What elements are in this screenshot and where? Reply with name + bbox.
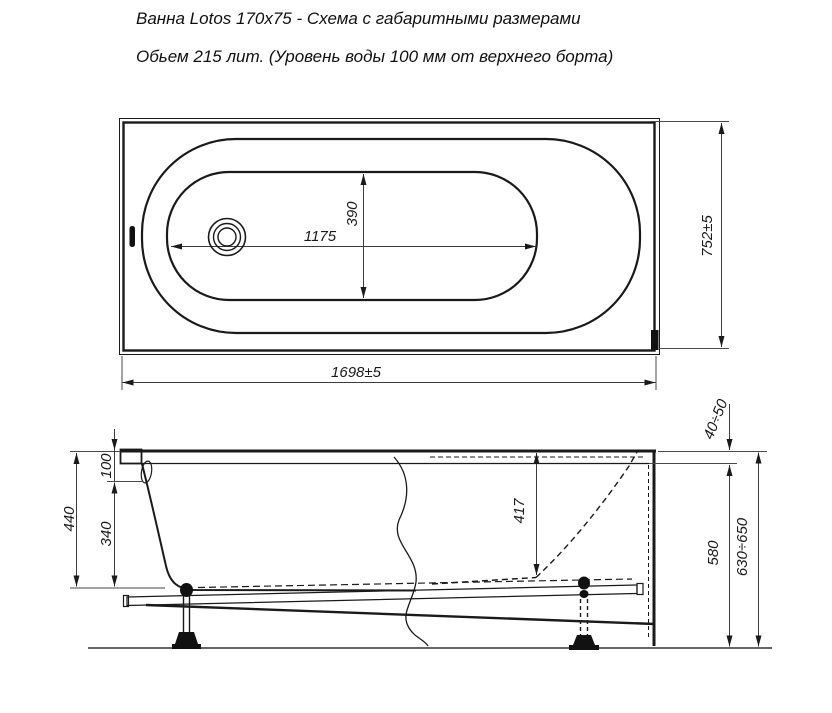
dim-text-rim-band: 40÷50 <box>700 396 732 442</box>
hidden-end-wall-profile <box>536 452 637 578</box>
leg-top-nut <box>578 577 590 590</box>
dim-text-water-depth: 340 <box>98 521 115 547</box>
basin-outline <box>167 172 537 300</box>
dim-text-total-height: 630÷650 <box>734 517 751 576</box>
dim-text-overall-width: 752±5 <box>699 215 716 257</box>
leg-front <box>172 583 201 649</box>
leg-foot <box>175 632 198 644</box>
drain <box>209 219 246 256</box>
technical-drawing: Ванна Lotos 170x75 - Схема с габаритными… <box>0 0 832 713</box>
rim-outline <box>142 139 640 333</box>
drawing-title: Ванна Lotos 170x75 - Схема с габаритными… <box>136 9 581 28</box>
dim-text-inner-depth-total: 440 <box>61 506 78 532</box>
leg-rear-hidden <box>569 577 599 651</box>
leg-foot <box>573 635 595 645</box>
break-line <box>394 457 428 646</box>
side-view: 440 100 340 417 40÷50 580 630÷650 <box>61 396 772 650</box>
dim-text-water-level: 100 <box>98 453 115 479</box>
dim-text-inner-depth-slope: 417 <box>511 498 528 524</box>
drain-inner-circle <box>218 228 236 246</box>
title-block: Ванна Lotos 170x75 - Схема с габаритными… <box>136 9 613 66</box>
dim-text-bottom-length: 1175 <box>304 228 337 245</box>
dim-text-bottom-width: 390 <box>344 201 361 227</box>
drawing-sheet: Ванна Lotos 170x75 - Схема с габаритными… <box>0 0 832 713</box>
plan-view: 1175 390 1698±5 752±5 <box>120 119 730 391</box>
dim-text-overall-length: 1698±5 <box>331 364 382 381</box>
support-rail <box>127 585 637 606</box>
overflow-mark <box>130 226 136 247</box>
frame-corner-mark <box>651 330 659 350</box>
rail-end-cap-right <box>637 584 643 595</box>
inner-wall-profile <box>142 464 416 591</box>
drawing-subtitle: Обьем 215 лит. (Уровень воды 100 мм от в… <box>136 47 613 66</box>
leg-lock-nut <box>580 590 589 598</box>
leg-foot-base <box>569 645 599 650</box>
skirt-bottom-edge <box>146 605 655 624</box>
dim-text-height-under-rim: 580 <box>705 540 722 566</box>
leg-top-nut <box>180 583 193 597</box>
outer-frame-thin <box>120 119 660 355</box>
outer-frame <box>124 123 655 351</box>
leg-foot-base <box>172 644 201 649</box>
